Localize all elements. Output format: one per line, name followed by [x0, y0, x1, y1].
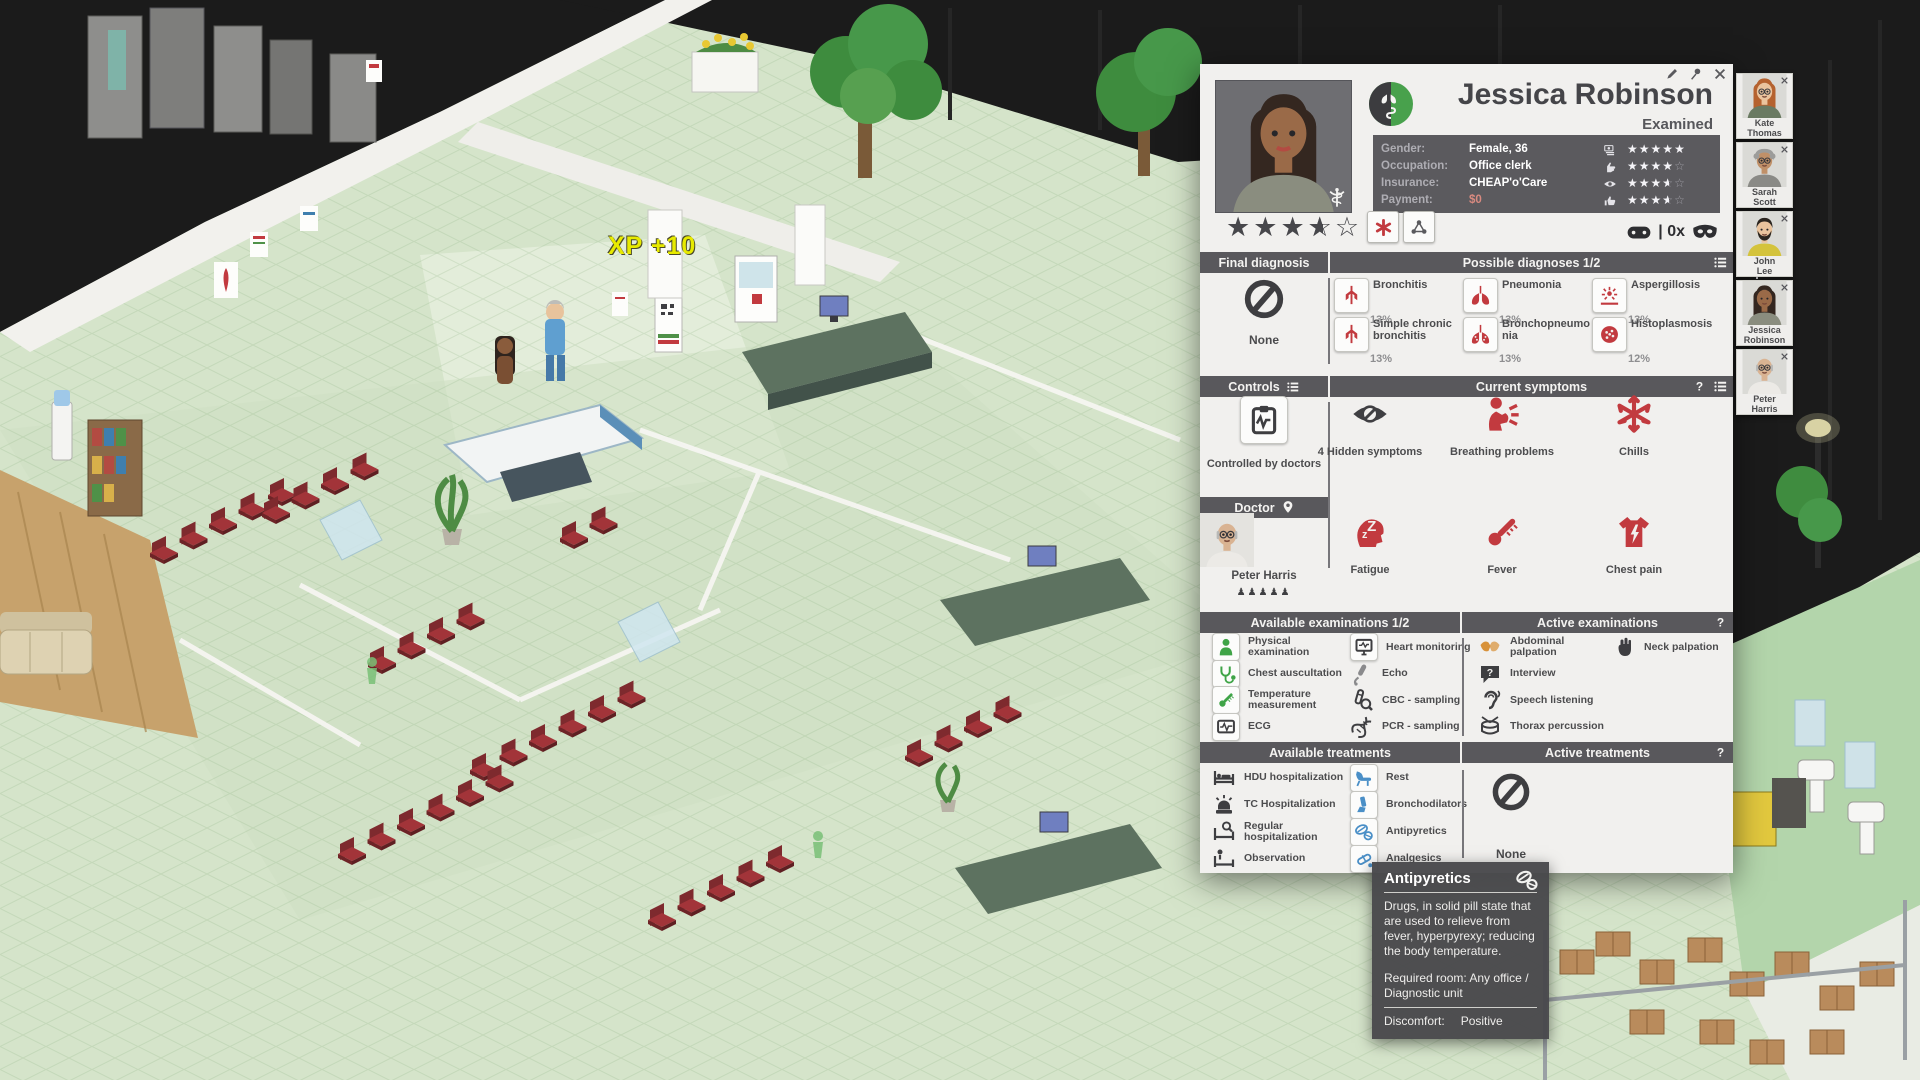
cell-icon: [1598, 323, 1621, 346]
doctor-seniority: ♟♟♟♟♟: [1237, 587, 1292, 598]
diagnosis-item[interactable]: Simple chronic bronchitis13%: [1334, 317, 1460, 352]
symptom-item[interactable]: Fever: [1442, 512, 1562, 576]
capsule-icon: [1354, 849, 1374, 869]
diagnosis-item[interactable]: Pneumonia13%: [1463, 278, 1589, 313]
info-label: Gender:: [1381, 141, 1469, 158]
thumbs-up-icon: [1603, 194, 1617, 208]
diagnosis-name: Histoplasmosis: [1631, 319, 1721, 331]
active-examinations-header: Active examinations ?: [1462, 612, 1733, 633]
breathing-icon: [1482, 394, 1522, 434]
examination-item[interactable]: Echo: [1350, 661, 1476, 687]
item-name: PCR - sampling: [1382, 721, 1460, 732]
examination-item[interactable]: ECG: [1212, 714, 1346, 740]
diagnosis-name: Bronchitis: [1373, 280, 1463, 292]
symptom-name: Fatigue: [1310, 564, 1430, 576]
item-name: TC Hospitalization: [1244, 799, 1336, 810]
bronchi-icon: [1340, 284, 1363, 307]
palpation-hand-icon: [1612, 635, 1636, 659]
active-examination-item[interactable]: Thorax percussion: [1478, 714, 1608, 740]
eye-icon: [1603, 177, 1617, 191]
item-name: Temperature measurement: [1248, 689, 1346, 711]
examination-item[interactable]: PCR - sampling: [1350, 714, 1476, 740]
item-name: ECG: [1248, 721, 1271, 732]
possible-diagnoses-list: Bronchitis13%Pneumonia13%Aspergillosis13…: [1330, 273, 1733, 373]
diagnosis-name: Simple chronic bronchitis: [1373, 319, 1463, 342]
list-icon[interactable]: [1713, 255, 1728, 270]
help-icon[interactable]: ?: [1713, 745, 1728, 760]
queue-patient-card[interactable]: JohnLee: [1736, 211, 1793, 277]
symptom-item[interactable]: 4 Hidden symptoms: [1310, 394, 1430, 458]
spores-icon: [1598, 284, 1621, 307]
list-icon: [1713, 255, 1728, 270]
diagnosis-name: Aspergillosis: [1631, 280, 1721, 292]
patient-meta-icons: | 0x: [1626, 218, 1719, 246]
diagnosis-group-icon: [1367, 80, 1415, 128]
available-examinations-header: Available examinations 1/2: [1200, 612, 1460, 633]
diagnosis-probability: 13%: [1370, 353, 1392, 365]
edit-icon[interactable]: [1664, 66, 1679, 81]
person-icon: [1216, 637, 1236, 657]
symptom-item[interactable]: Chills: [1574, 394, 1694, 458]
queue-patient-name: JessicaRobinson: [1737, 326, 1792, 345]
stethoscope-icon: [1216, 664, 1236, 684]
thermometer-icon: [1216, 690, 1236, 710]
symptom-name: Chest pain: [1574, 564, 1694, 576]
examination-item[interactable]: Physical examination: [1212, 634, 1346, 660]
active-examination-item[interactable]: ?Interview: [1478, 661, 1608, 687]
chest-pain-icon: [1614, 512, 1654, 552]
assigned-doctor[interactable]: Peter Harris ♟♟♟♟♟: [1200, 512, 1328, 600]
close-icon[interactable]: [1780, 352, 1790, 362]
treatment-item[interactable]: Antipyretics: [1350, 818, 1476, 845]
queue-patient-card[interactable]: JessicaRobinson: [1736, 280, 1793, 346]
help-icon: ?: [1713, 615, 1728, 630]
treatment-item[interactable]: Observation: [1212, 845, 1348, 872]
info-star-rating: ★★★★☆☆: [1627, 175, 1686, 192]
treatment-item[interactable]: Regular hospitalization: [1212, 818, 1348, 845]
info-value: $0: [1469, 194, 1482, 206]
tooltip-description: Drugs, in solid pill state that are used…: [1384, 899, 1537, 959]
item-name: Rest: [1386, 772, 1409, 783]
patient-info-row: Payment:$0★★★★☆☆: [1381, 192, 1720, 209]
fatigue-icon: Zz: [1350, 512, 1390, 552]
xp-popup: XP +10: [608, 232, 696, 261]
active-examination-item[interactable]: Speech listening: [1478, 687, 1608, 713]
active-examination-item[interactable]: Abdominal palpation: [1478, 634, 1608, 660]
possible-diagnoses-header: Possible diagnoses 1/2: [1330, 252, 1733, 273]
queue-patient-card[interactable]: SarahScott: [1736, 142, 1793, 208]
queue-patient-name: SarahScott: [1737, 188, 1792, 207]
item-name: Abdominal palpation: [1510, 636, 1608, 658]
symptom-name: Chills: [1574, 446, 1694, 458]
info-value: Female, 36: [1469, 143, 1528, 155]
edit-icon: [1665, 67, 1679, 81]
pills-icon: [1515, 868, 1539, 892]
examination-item[interactable]: Temperature measurement: [1212, 687, 1346, 713]
examinations-list: Physical examinationChest auscultationTe…: [1200, 634, 1733, 740]
ecg-icon: [1216, 717, 1236, 737]
info-label: Occupation:: [1381, 158, 1469, 175]
hands-icon: [1478, 635, 1502, 659]
speech-bubble-icon: ?: [1478, 662, 1502, 686]
null-icon: [1489, 770, 1533, 814]
treatment-tooltip: Antipyretics Drugs, in solid pill state …: [1372, 862, 1549, 1039]
pills-icon: [1515, 868, 1539, 892]
patient-name: Jessica Robinson: [1458, 78, 1713, 112]
patient-photo: [1215, 80, 1352, 213]
patient-panel: Jessica Robinson Examined Gender:Female,…: [1200, 64, 1733, 873]
patient-info-row: Gender:Female, 36★★★★★: [1381, 141, 1720, 158]
info-value: Office clerk: [1469, 160, 1532, 172]
help-icon: ?: [1713, 745, 1728, 760]
symptom-item[interactable]: Breathing problems: [1442, 394, 1562, 458]
symptom-item[interactable]: Chest pain: [1574, 512, 1694, 576]
item-name: Regular hospitalization: [1244, 821, 1348, 843]
svg-text:z: z: [1362, 529, 1368, 541]
item-name: Neck palpation: [1644, 642, 1719, 653]
close-icon: [1780, 145, 1789, 154]
item-name: HDU hospitalization: [1244, 772, 1343, 783]
caduceus-icon: [1326, 187, 1348, 209]
examination-item[interactable]: CBC - sampling: [1350, 687, 1476, 713]
item-name: Speech listening: [1510, 695, 1593, 706]
diagnosis-group-icon: [1367, 80, 1415, 128]
final-diagnosis-none: None: [1200, 270, 1328, 347]
drum-icon: [1478, 715, 1502, 739]
dna-icon: [1350, 715, 1374, 739]
game-viewport[interactable]: XP +10 Jessica Robinson Examined Gender:…: [0, 0, 1920, 1080]
item-name: Observation: [1244, 853, 1305, 864]
active-treatments-none: None: [1466, 770, 1556, 861]
avatar: [1200, 512, 1254, 568]
emergency-asterisk-button[interactable]: [1367, 211, 1399, 243]
available-treatments-header: Available treatments: [1200, 742, 1460, 763]
queue-patient-card[interactable]: KateThomas: [1736, 73, 1793, 139]
doctor-avatar: [1200, 512, 1328, 568]
info-label: Insurance:: [1381, 175, 1469, 192]
bookshelf[interactable]: [88, 420, 142, 516]
hidden-eye-icon: [1350, 394, 1390, 434]
info-star-rating: ★★★★☆: [1627, 158, 1686, 175]
svg-text:?: ?: [1487, 666, 1493, 678]
pin-icon[interactable]: [1688, 66, 1703, 81]
thermometer-icon: [1482, 512, 1522, 552]
item-name: Antipyretics: [1386, 826, 1447, 837]
treatment-item[interactable]: HDU hospitalization: [1212, 764, 1348, 791]
sofa[interactable]: [0, 612, 92, 674]
close-icon[interactable]: [1780, 76, 1790, 86]
item-name: CBC - sampling: [1382, 695, 1460, 706]
diagnosis-item[interactable]: Bronchitis13%: [1334, 278, 1460, 313]
bronchi-icon: [1340, 323, 1363, 346]
patient-rating-stars: ★★★★☆☆: [1226, 212, 1362, 243]
lungs-icon: [1469, 284, 1492, 307]
mask-icon: [1691, 218, 1719, 246]
control-count: | 0x: [1658, 223, 1685, 241]
patient-status: Examined: [1642, 116, 1713, 133]
close-icon[interactable]: [1780, 145, 1790, 155]
diagnosis-item[interactable]: Histoplasmosis12%: [1592, 317, 1718, 352]
active-examination-item[interactable]: Neck palpation: [1612, 634, 1730, 660]
controls-mode[interactable]: Controlled by doctors: [1200, 390, 1328, 470]
diagnosis-item[interactable]: Bronchopneumonia13%: [1463, 317, 1589, 352]
ear-icon: [1478, 688, 1502, 712]
item-name: Chest auscultation: [1248, 668, 1342, 679]
gamepad-icon: [1626, 219, 1652, 245]
symptom-name: Fever: [1442, 564, 1562, 576]
pin-icon: [1689, 67, 1703, 81]
close-icon: [1713, 67, 1727, 81]
svg-text:?: ?: [1717, 746, 1724, 760]
symptom-name: 4 Hidden symptoms: [1310, 446, 1430, 458]
close-icon: [1780, 283, 1789, 292]
caduceus-icon: [1326, 187, 1348, 209]
tooltip-required-room: Required room: Any office / Diagnostic u…: [1384, 971, 1537, 1001]
close-icon[interactable]: [1712, 66, 1727, 81]
close-icon[interactable]: [1780, 214, 1790, 224]
tooltip-discomfort-value: Positive: [1461, 1014, 1503, 1029]
patient-figure[interactable]: [495, 336, 515, 384]
diagnosis-name: Pneumonia: [1502, 280, 1592, 292]
close-icon: [1780, 214, 1789, 223]
symptom-item[interactable]: ZzFatigue: [1310, 512, 1430, 576]
network-icon: [1410, 218, 1428, 236]
test-tube-icon: [1350, 688, 1374, 712]
diagnosis-probability: 12%: [1628, 353, 1650, 365]
pills-icon: [1354, 822, 1374, 842]
bed-search-icon: [1212, 820, 1236, 844]
tooltip-discomfort-label: Discomfort:: [1384, 1014, 1445, 1029]
siren-icon: [1212, 793, 1236, 817]
inhaler-icon: [1354, 795, 1374, 815]
patient-info-box: Gender:Female, 36★★★★★Occupation:Office …: [1373, 135, 1720, 213]
queue-patient-card[interactable]: PeterHarris: [1736, 349, 1793, 415]
diagnosis-item[interactable]: Aspergillosis13%: [1592, 278, 1718, 313]
echo-icon: [1350, 662, 1374, 686]
asterisk-icon: [1374, 218, 1393, 237]
diagnosis-probability: 13%: [1499, 353, 1521, 365]
diagnosis-name: Bronchopneumonia: [1502, 319, 1592, 342]
bed-icon: [1212, 766, 1236, 790]
help-icon[interactable]: ?: [1713, 615, 1728, 630]
lungs-dots-icon: [1469, 323, 1492, 346]
diagnosis-network-button[interactable]: [1403, 211, 1435, 243]
mask-icon: [1691, 218, 1719, 246]
treatment-item[interactable]: TC Hospitalization: [1212, 791, 1348, 818]
close-icon[interactable]: [1780, 283, 1790, 293]
item-name: Heart monitoring: [1386, 642, 1471, 653]
null-icon: [1241, 276, 1287, 322]
close-icon: [1780, 76, 1789, 85]
active-treatments-header: Active treatments ?: [1462, 742, 1733, 763]
examination-item[interactable]: Chest auscultation: [1212, 661, 1346, 687]
symptom-name: Breathing problems: [1442, 446, 1562, 458]
treatment-item[interactable]: Rest: [1350, 764, 1476, 791]
patient-info-row: Occupation:Office clerk★★★★☆: [1381, 158, 1720, 175]
item-name: Bronchodilators: [1386, 799, 1467, 810]
bed-person-icon: [1212, 847, 1236, 871]
info-value: CHEAP'o'Care: [1469, 177, 1547, 189]
item-name: Thorax percussion: [1510, 721, 1604, 732]
item-name: Echo: [1382, 668, 1408, 679]
cleaning-cart[interactable]: [1732, 792, 1776, 846]
item-name: Physical examination: [1248, 636, 1346, 658]
patient-queue: KateThomasSarahScottJohnLeeJessicaRobins…: [1736, 73, 1793, 418]
clipboard-icon: [1247, 403, 1281, 437]
info-label: Payment:: [1381, 192, 1469, 209]
symptoms-list: 4 Hidden symptomsBreathing problemsChill…: [1330, 390, 1733, 600]
water-cooler[interactable]: [52, 390, 72, 460]
svg-text:Z: Z: [1367, 518, 1376, 535]
patient-info-row: Insurance:CHEAP'o'Care★★★★☆☆: [1381, 175, 1720, 192]
rest-chair-icon: [1354, 768, 1374, 788]
close-icon: [1780, 352, 1789, 361]
snowflake-icon: [1614, 394, 1654, 434]
svg-text:?: ?: [1717, 616, 1724, 630]
item-name: Interview: [1510, 668, 1556, 679]
queue-patient-name: KateThomas: [1737, 119, 1792, 138]
money-icon: [1603, 143, 1617, 157]
queue-patient-name: JohnLee: [1737, 257, 1792, 276]
examination-item[interactable]: Heart monitoring: [1350, 634, 1476, 660]
treatment-item[interactable]: Bronchodilators: [1350, 791, 1476, 818]
queue-patient-name: PeterHarris: [1737, 395, 1792, 414]
monitor-icon: [1354, 637, 1374, 657]
info-star-rating: ★★★★★: [1627, 141, 1686, 158]
info-star-rating: ★★★★☆☆: [1627, 192, 1686, 209]
hand-icon: [1603, 160, 1617, 174]
gamepad-icon: [1626, 219, 1652, 245]
